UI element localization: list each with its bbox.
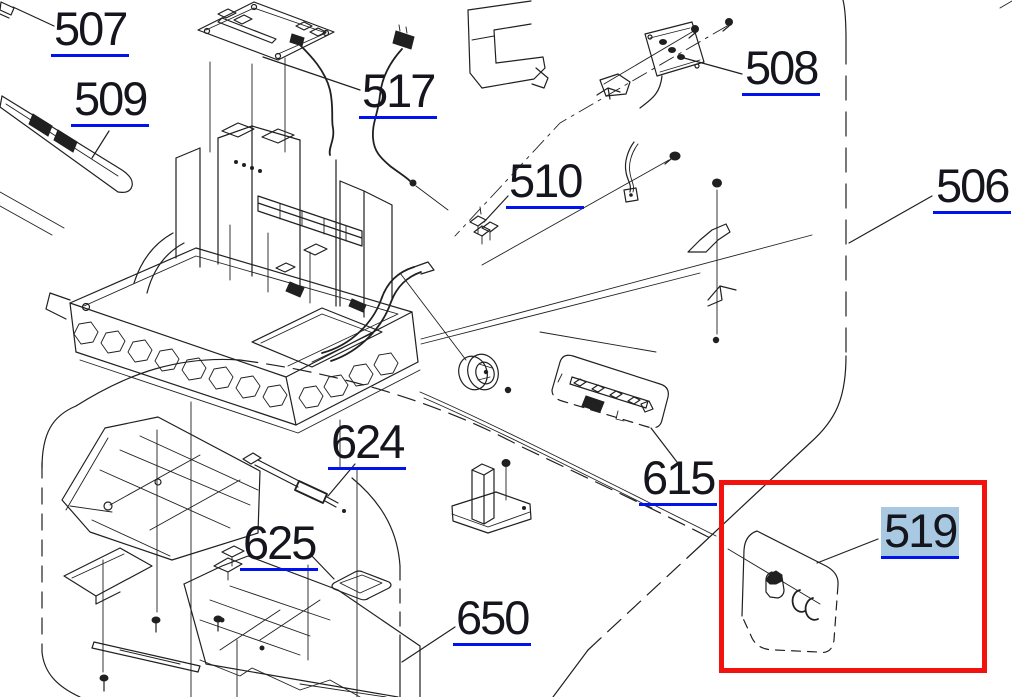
main-chassis-assembly [46, 123, 466, 433]
part-label-615[interactable]: 615 [639, 454, 717, 506]
part-508-board [455, 19, 733, 237]
part-label-519-selected[interactable]: 519 [881, 507, 959, 559]
group-650-boundary [42, 359, 714, 697]
part-label-650[interactable]: 650 [453, 594, 531, 646]
screw-axis-vertical [688, 179, 736, 343]
part-label-508[interactable]: 508 [742, 44, 820, 96]
sheet-metal-bracket [468, 1, 548, 88]
part-507-fragment [0, 2, 14, 18]
part-625-plate [332, 571, 391, 600]
diagram-canvas: 507 509 517 510 508 506 624 625 615 650 … [0, 0, 1012, 697]
part-label-625[interactable]: 625 [240, 519, 318, 571]
part-label-517[interactable]: 517 [359, 67, 437, 119]
part-label-624[interactable]: 624 [328, 418, 406, 470]
pulley-wheel [454, 350, 511, 394]
part-label-507[interactable]: 507 [51, 5, 129, 57]
wire-harness-a [290, 34, 333, 155]
part-label-506[interactable]: 506 [933, 162, 1011, 214]
panel-edge-lines-left [0, 192, 64, 235]
part-label-509[interactable]: 509 [71, 75, 149, 127]
standoff-part [452, 460, 531, 534]
group-615 [552, 355, 668, 427]
part-510-connector [470, 207, 498, 244]
part-label-510[interactable]: 510 [506, 157, 584, 209]
